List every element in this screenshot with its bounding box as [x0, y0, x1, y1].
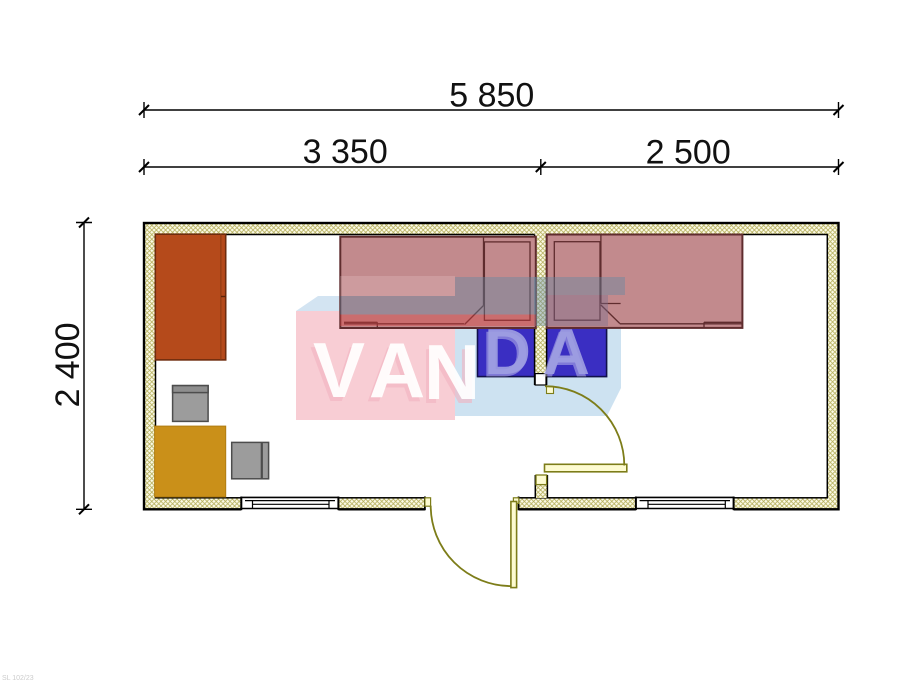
svg-text:5 850: 5 850: [449, 77, 534, 115]
svg-text:N: N: [424, 328, 480, 416]
svg-text:D: D: [484, 315, 531, 388]
svg-text:V: V: [313, 326, 365, 414]
svg-text:SL 102/23: SL 102/23: [2, 675, 34, 682]
svg-text:3 350: 3 350: [303, 133, 388, 171]
svg-text:2 500: 2 500: [646, 134, 731, 172]
svg-text:A: A: [543, 315, 590, 388]
svg-text:A: A: [369, 326, 425, 414]
svg-text:2 400: 2 400: [49, 322, 87, 407]
